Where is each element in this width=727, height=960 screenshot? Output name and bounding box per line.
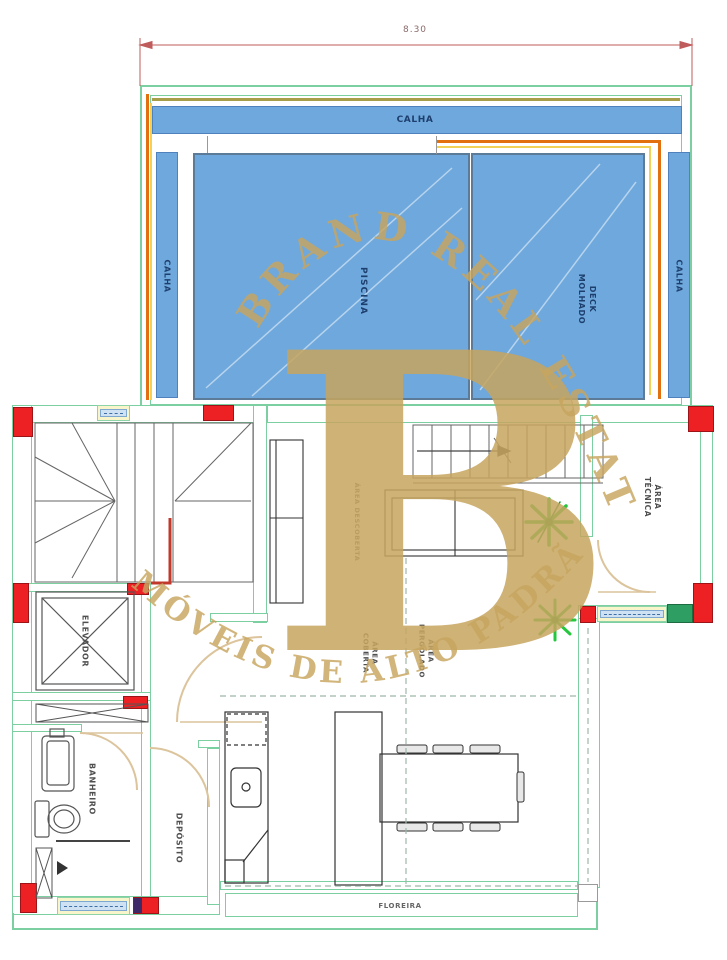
- window-glass: [60, 901, 127, 911]
- center-wall-cap: [210, 613, 268, 622]
- staircase-lower: [35, 423, 253, 582]
- label-area-descoberta: ÁREA DESCOBERTA: [353, 483, 361, 562]
- label-area-coberta: ÁREA COBERTA: [360, 633, 379, 673]
- label-deposito: DEPÓSITO: [175, 813, 184, 864]
- gap-divider-line: [207, 136, 208, 153]
- hall-door-arc: [177, 637, 262, 722]
- wall-junction-box: [578, 884, 598, 902]
- window-glass: [100, 409, 127, 417]
- stair-direction-arrow: [417, 446, 510, 456]
- sofa-horizontal: [385, 490, 523, 556]
- gutter-olive-line: [152, 98, 680, 101]
- main-right-wall: [578, 618, 600, 888]
- structural-column: [13, 583, 29, 623]
- left-yellow-line: [150, 103, 152, 400]
- window-frame-line: [64, 906, 123, 907]
- toilet: [35, 801, 80, 837]
- label-calha-right: CALHA: [675, 259, 684, 292]
- kitchen-bottom-wall: [220, 881, 578, 890]
- label-area-coberta-line2: COBERTA: [360, 633, 369, 673]
- top-wall-center: [267, 405, 713, 423]
- pool-water: [193, 153, 470, 400]
- structural-column: [133, 897, 159, 914]
- right-yellow-L-line: [437, 146, 651, 395]
- left-outer-wall: [12, 405, 32, 915]
- bench-vertical: [270, 440, 303, 603]
- label-area-pergolado: ÁREA PERGOLADO: [416, 624, 435, 678]
- dining-chairs: [397, 745, 524, 831]
- structural-column: [127, 583, 149, 595]
- outer-bottom-line: [12, 928, 598, 930]
- storage-right-wall: [207, 748, 220, 905]
- sink: [42, 729, 74, 791]
- column-dark-part: [134, 898, 142, 913]
- label-calha-top: CALHA: [397, 115, 434, 125]
- label-area-tecnica: ÁREA TÉCNICA: [642, 477, 662, 517]
- label-floreira: FLOREIRA: [378, 902, 421, 910]
- dimension-label: 8.30: [403, 25, 427, 35]
- label-calha-left: CALHA: [163, 259, 172, 292]
- label-area-pergolado-line1: ÁREA: [425, 624, 434, 678]
- outer-left-connector: [12, 913, 14, 930]
- dimension-line: [140, 38, 692, 86]
- gap-divider-line: [436, 136, 437, 154]
- window-frame-line: [104, 413, 123, 414]
- label-area-tecnica-line1: ÁREA: [652, 477, 662, 517]
- plant: [526, 499, 572, 545]
- outer-bottom-connector: [596, 900, 598, 930]
- label-banheiro: BANHEIRO: [88, 763, 97, 815]
- structural-column: [693, 583, 713, 623]
- left-orange-line: [146, 94, 149, 400]
- window-glass: [600, 610, 664, 618]
- hall-right-wall: [141, 583, 151, 915]
- label-elevador: ELEVADOR: [81, 615, 90, 667]
- plant: [535, 600, 575, 640]
- kitchen-counter: [225, 712, 268, 883]
- label-deck-line2: MOLHADO: [575, 274, 586, 324]
- window: [597, 606, 667, 622]
- structural-column: [580, 606, 596, 623]
- label-piscina: PISCINA: [358, 267, 368, 315]
- staircase-upper: [413, 425, 603, 483]
- structural-column: [13, 407, 33, 437]
- structural-column: [203, 405, 234, 421]
- structural-column: [123, 696, 148, 709]
- bathroom-top-wall: [12, 724, 82, 732]
- label-deck-molhado: DECK MOLHADO: [575, 274, 597, 324]
- storage-top-wall-segment: [198, 740, 220, 748]
- label-area-tecnica-line2: TÉCNICA: [642, 477, 652, 517]
- label-area-coberta-line1: ÁREA: [369, 633, 378, 673]
- door-swings: [80, 540, 656, 807]
- window: [97, 405, 130, 421]
- label-deck-line1: DECK: [586, 274, 597, 324]
- stair-right-wall: [253, 405, 267, 623]
- structural-column: [688, 406, 714, 432]
- storage-door-arc: [150, 748, 209, 807]
- window-frame-line: [604, 614, 660, 615]
- label-area-pergolado-line2: PERGOLADO: [416, 624, 425, 678]
- tech-room-door-arc: [598, 540, 650, 592]
- dining-table: [380, 754, 518, 822]
- floor-plan: 8.30 CALHA CALHA CALHA PISCINA DECK MOLH…: [0, 0, 727, 960]
- wall-fill-segment: [667, 604, 693, 623]
- roof-projection-dashed-lines: [220, 558, 588, 886]
- window: [57, 897, 130, 915]
- small-shaft: [36, 848, 52, 898]
- door-swing-marker: [57, 861, 68, 875]
- structural-column: [20, 883, 37, 913]
- stair-handrail: [151, 518, 170, 583]
- tech-room-left-wall: [580, 415, 593, 537]
- island-counter: [335, 712, 382, 885]
